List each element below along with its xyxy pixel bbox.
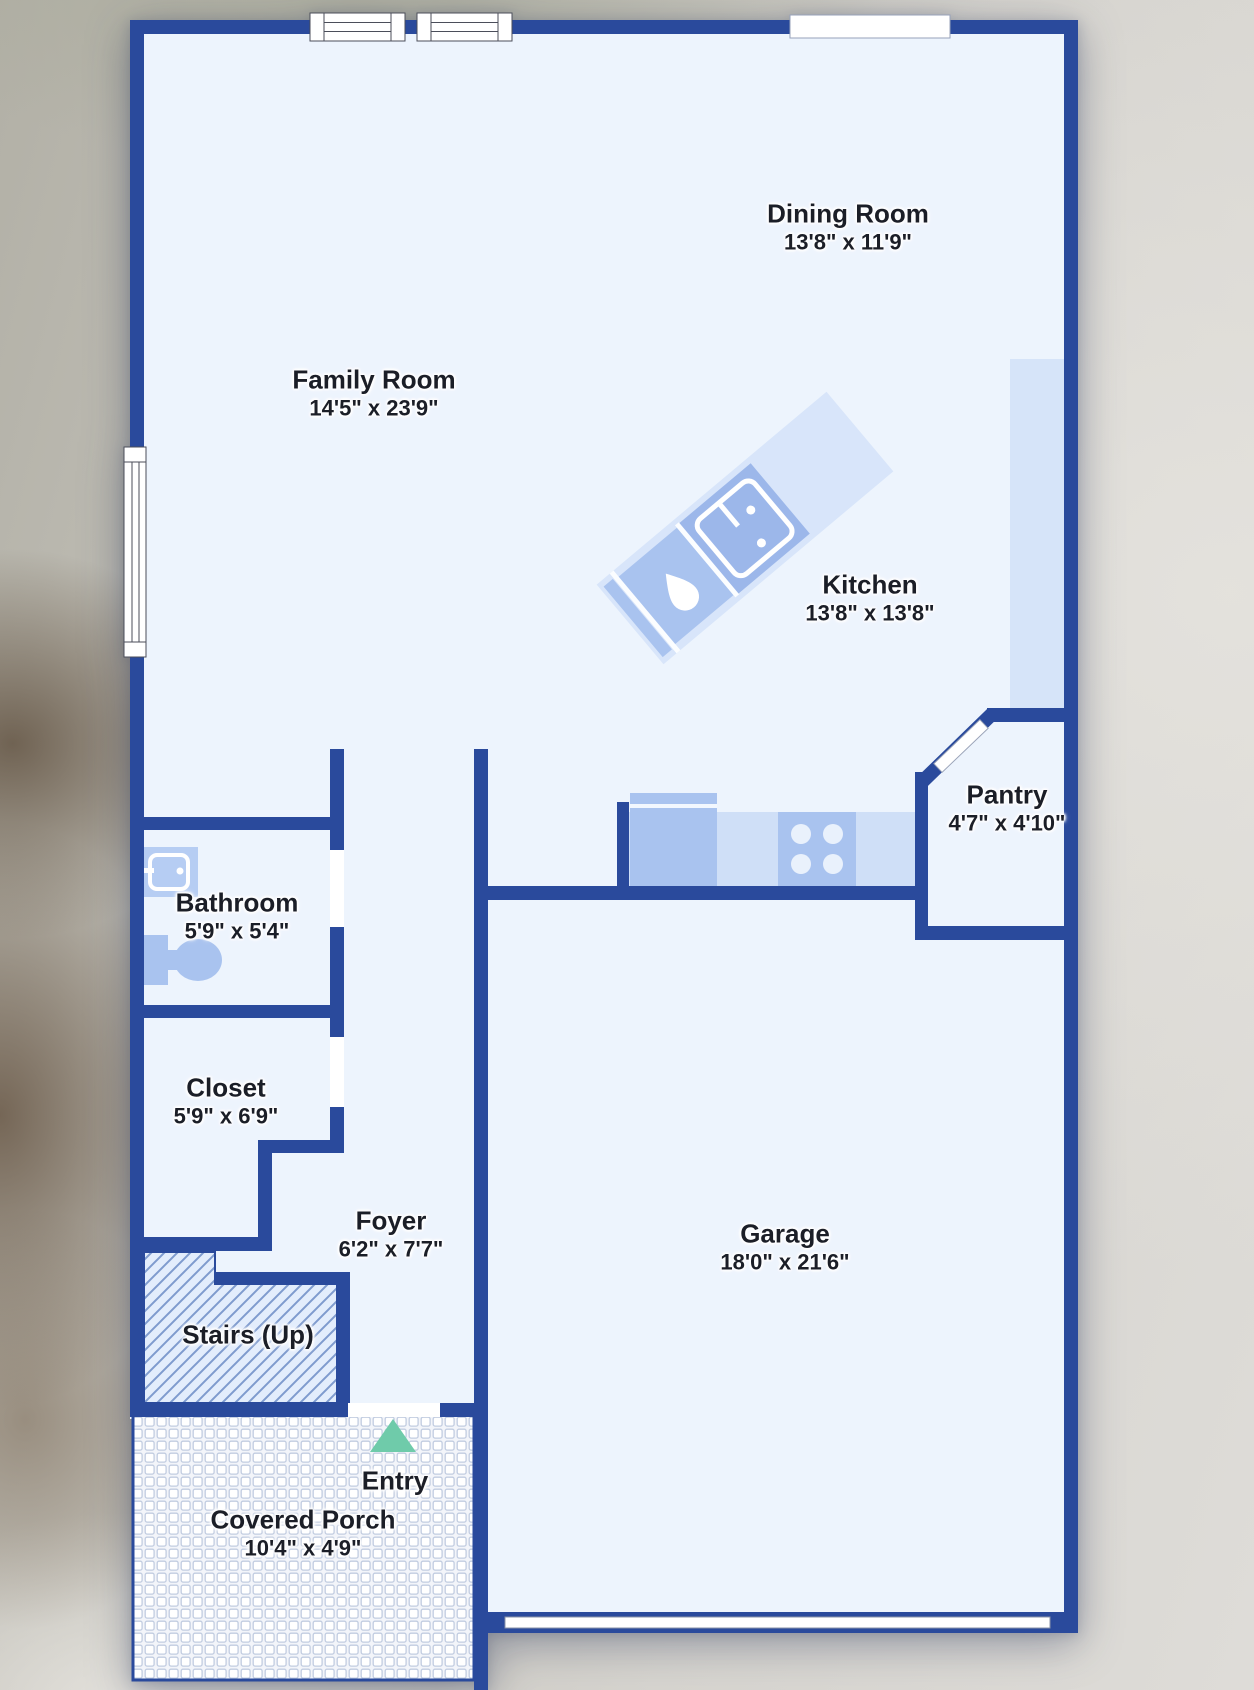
room-label-bathroom: Bathroom 5'9" x 5'4" bbox=[176, 888, 299, 945]
room-name: Dining Room bbox=[767, 199, 929, 230]
stove-icon bbox=[778, 812, 856, 886]
room-dimensions: 14'5" x 23'9" bbox=[292, 395, 455, 421]
room-name: Entry bbox=[362, 1466, 428, 1497]
window-icon bbox=[790, 15, 950, 38]
room-name: Pantry bbox=[949, 780, 1066, 811]
room-name: Foyer bbox=[339, 1206, 444, 1237]
room-label-dining-room: Dining Room 13'8" x 11'9" bbox=[767, 199, 929, 256]
room-label-covered-porch: Covered Porch 10'4" x 4'9" bbox=[211, 1505, 396, 1562]
room-name: Garage bbox=[720, 1219, 849, 1250]
refrigerator-icon bbox=[630, 793, 717, 886]
room-dimensions: 4'7" x 4'10" bbox=[949, 810, 1066, 836]
closet-door-opening bbox=[330, 1037, 344, 1107]
window-icon bbox=[417, 13, 512, 41]
room-label-entry: Entry bbox=[362, 1466, 428, 1497]
room-name: Covered Porch bbox=[211, 1505, 396, 1536]
room-label-foyer: Foyer 6'2" x 7'7" bbox=[339, 1206, 444, 1263]
floorplan-drawing bbox=[0, 0, 1254, 1690]
room-name: Kitchen bbox=[805, 570, 934, 601]
room-dimensions: 5'9" x 6'9" bbox=[174, 1103, 279, 1129]
garage-door bbox=[505, 1617, 1050, 1628]
front-door-opening bbox=[348, 1403, 440, 1417]
room-dimensions: 13'8" x 13'8" bbox=[805, 600, 934, 626]
bathroom-door-opening bbox=[330, 850, 344, 927]
room-dimensions: 5'9" x 5'4" bbox=[176, 918, 299, 944]
room-label-family-room: Family Room 14'5" x 23'9" bbox=[292, 365, 455, 422]
room-dimensions: 10'4" x 4'9" bbox=[211, 1535, 396, 1561]
room-dimensions: 18'0" x 21'6" bbox=[720, 1249, 849, 1275]
window-icon bbox=[124, 447, 146, 657]
room-dimensions: 6'2" x 7'7" bbox=[339, 1236, 444, 1262]
room-dimensions: 13'8" x 11'9" bbox=[767, 229, 929, 255]
room-name: Bathroom bbox=[176, 888, 299, 919]
room-label-stairs: Stairs (Up) bbox=[182, 1320, 313, 1351]
room-name: Family Room bbox=[292, 365, 455, 396]
room-label-closet: Closet 5'9" x 6'9" bbox=[174, 1073, 279, 1130]
room-name: Stairs (Up) bbox=[182, 1320, 313, 1351]
floorplan-screenshot: Dining Room 13'8" x 11'9" Family Room 14… bbox=[0, 0, 1254, 1690]
room-label-kitchen: Kitchen 13'8" x 13'8" bbox=[805, 570, 934, 627]
window-icon bbox=[310, 13, 405, 41]
room-label-garage: Garage 18'0" x 21'6" bbox=[720, 1219, 849, 1276]
room-name: Closet bbox=[174, 1073, 279, 1104]
room-label-pantry: Pantry 4'7" x 4'10" bbox=[949, 780, 1066, 837]
